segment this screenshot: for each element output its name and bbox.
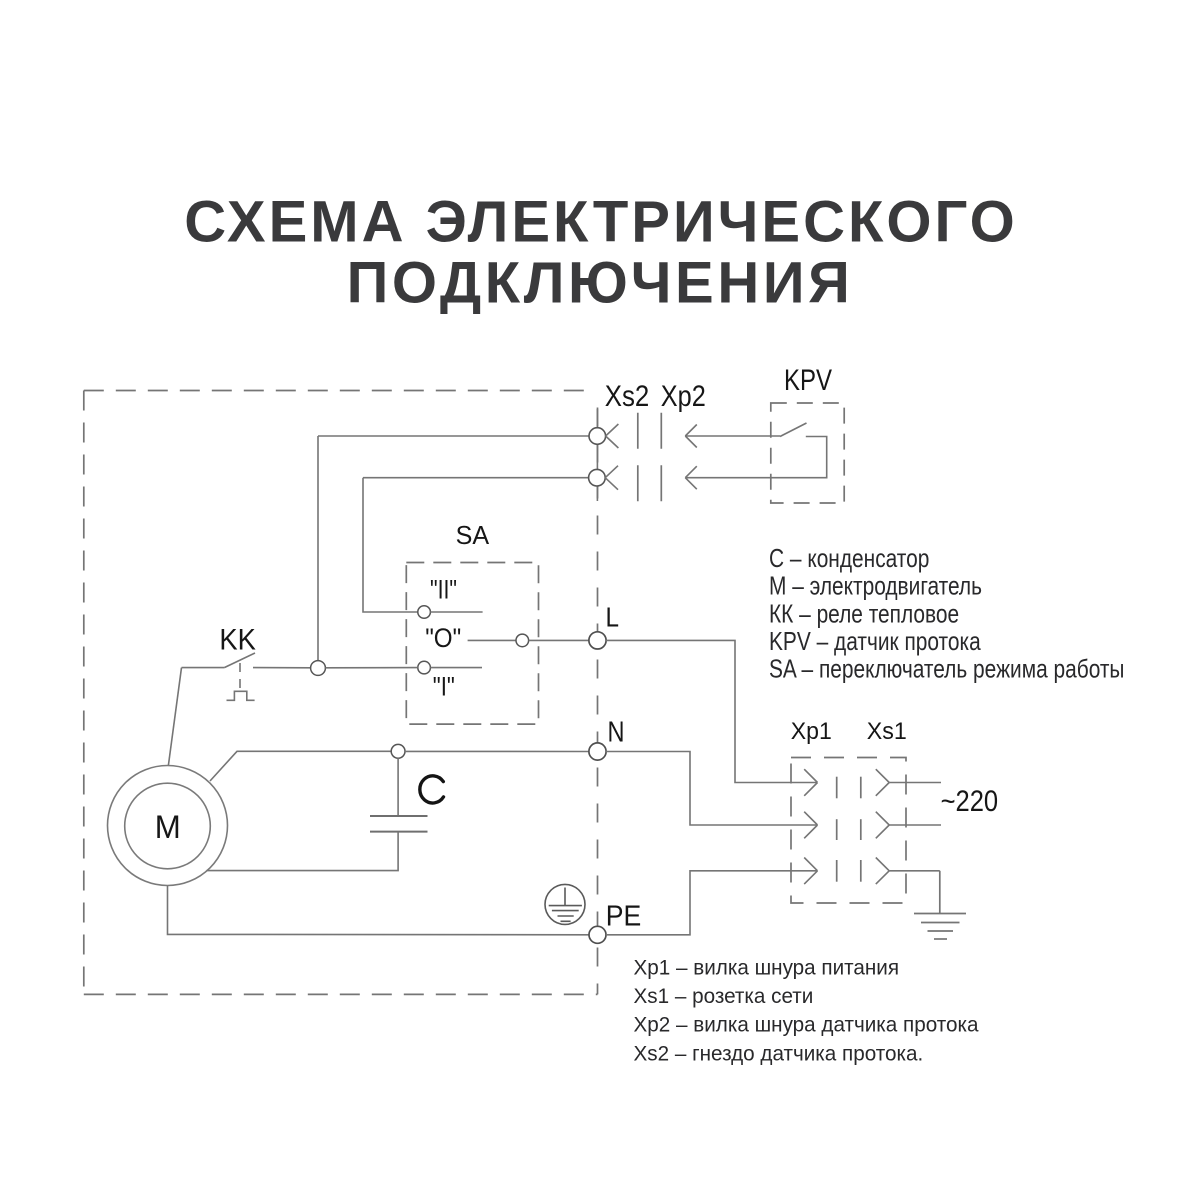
svg-text:Xs1: Xs1 — [867, 718, 907, 745]
svg-text:"II": "II" — [430, 575, 457, 605]
svg-text:KK: KK — [219, 624, 256, 657]
svg-text:M: M — [155, 809, 181, 845]
svg-text:С – конденсатор: С – конденсатор — [769, 544, 929, 572]
svg-text:СХЕМА ЭЛЕКТРИЧЕСКОГО: СХЕМА ЭЛЕКТРИЧЕСКОГО — [184, 190, 1018, 255]
svg-text:N: N — [608, 716, 625, 748]
svg-text:Xp2: Xp2 — [661, 380, 706, 413]
svg-text:"I": "I" — [433, 672, 455, 702]
svg-text:L: L — [606, 602, 620, 633]
svg-text:ПОДКЛЮЧЕНИЯ: ПОДКЛЮЧЕНИЯ — [347, 250, 854, 315]
svg-text:KPV – датчик протока: KPV – датчик протока — [769, 627, 981, 655]
svg-text:"O": "O" — [425, 623, 461, 653]
svg-text:Xp1 – вилка шнура питания: Xp1 – вилка шнура питания — [634, 956, 900, 979]
svg-text:PE: PE — [606, 901, 642, 933]
svg-text:KPV: KPV — [784, 364, 832, 397]
svg-text:SA – переключатель режима рабо: SA – переключатель режима работы — [769, 655, 1124, 683]
svg-text:КК – реле тепловое: КК – реле тепловое — [769, 599, 959, 627]
svg-text:Xs2 – гнездо датчика протока.: Xs2 – гнездо датчика протока. — [634, 1042, 924, 1065]
svg-text:М – электродвигатель: М – электродвигатель — [769, 572, 982, 600]
svg-text:Xp2 – вилка шнура датчика прот: Xp2 – вилка шнура датчика протока — [634, 1014, 979, 1037]
svg-text:~220: ~220 — [941, 785, 999, 818]
svg-text:Xs2: Xs2 — [605, 380, 650, 413]
svg-text:Xs1 – розетка сети: Xs1 – розетка сети — [634, 985, 814, 1008]
svg-text:SA: SA — [456, 522, 490, 550]
svg-text:Xp1: Xp1 — [791, 718, 832, 745]
